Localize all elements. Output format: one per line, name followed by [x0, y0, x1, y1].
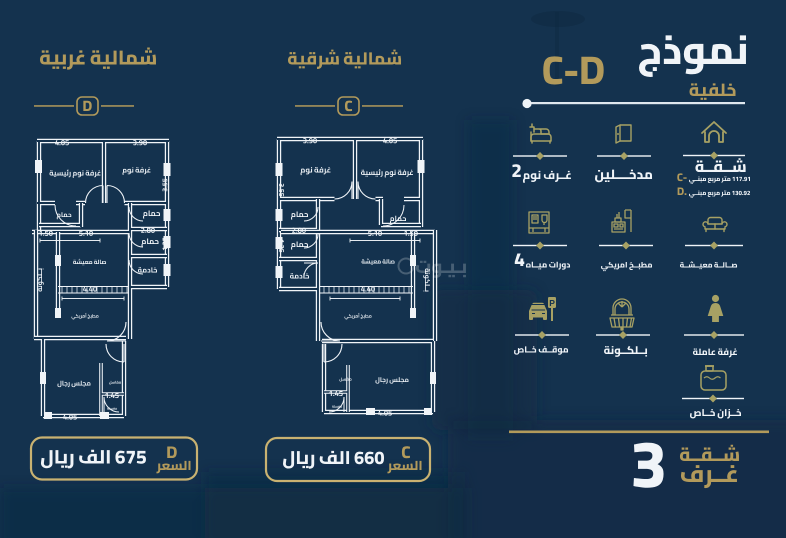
svg-text:P: P [549, 298, 555, 308]
